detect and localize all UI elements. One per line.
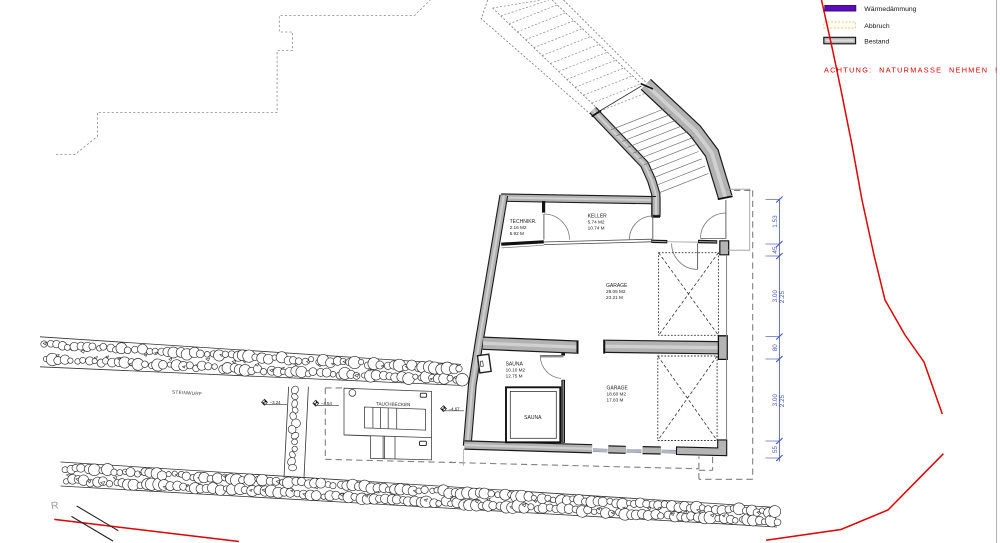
svg-text:5.92 M: 5.92 M (510, 231, 524, 236)
svg-text:12.75 M: 12.75 M (506, 374, 523, 379)
svg-text:2.16 M2: 2.16 M2 (510, 225, 527, 230)
svg-text:23.21 M: 23.21 M (606, 295, 623, 300)
svg-text:GARAGE: GARAGE (606, 283, 628, 289)
svg-text:2.25: 2.25 (779, 290, 786, 303)
svg-text:17.83 M: 17.83 M (607, 397, 624, 402)
svg-text:TECHNIKR.: TECHNIKR. (510, 219, 537, 225)
svg-text:45: 45 (772, 246, 779, 254)
svg-text:55: 55 (772, 446, 779, 454)
svg-text:ACHTUNG: NATURMASSE NEHMEN: ACHTUNG: NATURMASSE NEHMEN ! (824, 66, 998, 75)
svg-text:−4.67: −4.67 (449, 406, 461, 411)
svg-text:Wärmedämmung: Wärmedämmung (864, 6, 916, 13)
svg-text:SAUNA: SAUNA (524, 415, 542, 421)
svg-text:2.25: 2.25 (779, 394, 786, 407)
svg-text:10.10 M2: 10.10 M2 (506, 368, 526, 373)
svg-text:SAUNA: SAUNA (506, 361, 524, 367)
svg-text:Abbruch: Abbruch (864, 23, 890, 30)
svg-text:80: 80 (772, 344, 779, 352)
svg-text:−4.54: −4.54 (321, 401, 333, 406)
svg-text:Bestand: Bestand (864, 38, 889, 45)
svg-text:KELLER: KELLER (588, 214, 608, 220)
svg-text:5.74 M2: 5.74 M2 (588, 220, 605, 225)
svg-text:−3.24: −3.24 (270, 400, 282, 405)
svg-text:TAUCHBECKEN: TAUCHBECKEN (376, 401, 410, 407)
svg-text:18.60 M2: 18.60 M2 (607, 391, 627, 396)
svg-text:10.74 M: 10.74 M (588, 226, 605, 231)
svg-text:1.53: 1.53 (772, 215, 779, 228)
svg-text:28.05 M2: 28.05 M2 (606, 289, 626, 294)
